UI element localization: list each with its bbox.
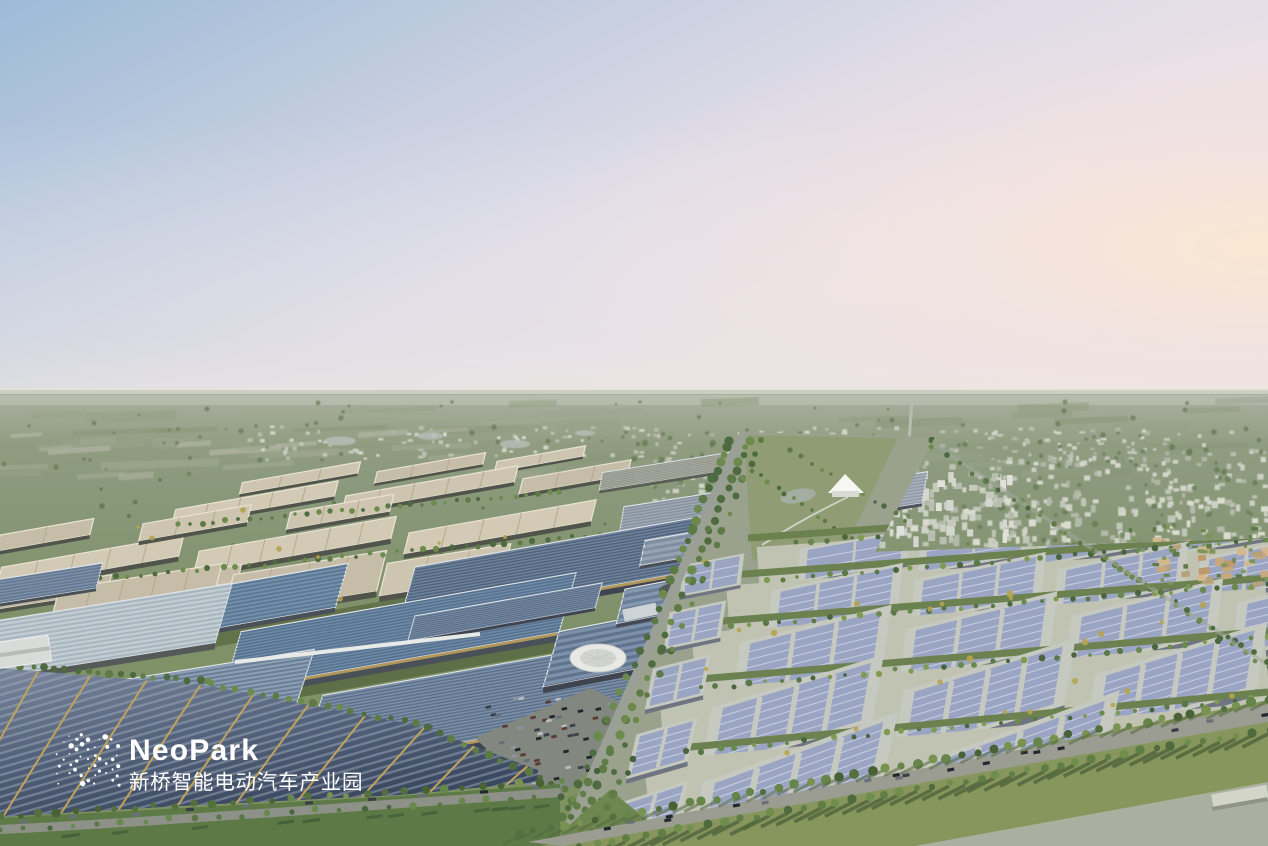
svg-text:NeoPark: NeoPark xyxy=(129,734,259,767)
svg-text:新桥智能电动汽车产业园: 新桥智能电动汽车产业园 xyxy=(129,771,363,794)
